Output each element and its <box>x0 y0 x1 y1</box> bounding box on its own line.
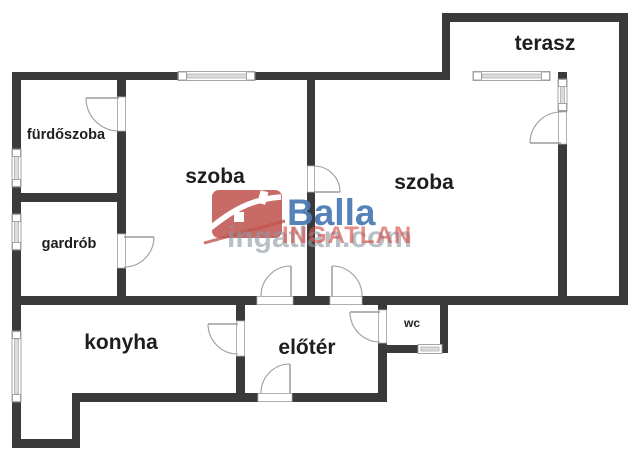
room-label-szoba-right: szoba <box>394 171 454 194</box>
door-arc-kitchen <box>208 324 238 354</box>
room-label-terasz: terasz <box>515 32 576 55</box>
door-arc-terrace <box>530 112 561 143</box>
watermark: ingatlan.com INGATLAN Balla <box>204 190 412 254</box>
room-label-gardrob: gardrób <box>42 236 97 252</box>
door-arc-entrance <box>261 364 290 393</box>
room-label-szoba-left: szoba <box>185 165 245 188</box>
door-arc-wardrobe <box>124 237 154 267</box>
door-opening-room-left <box>257 297 293 305</box>
door-opening-entrance <box>258 394 292 402</box>
window-room-right-top <box>473 72 550 81</box>
room-label-eloter: előtér <box>278 336 335 359</box>
wall-bottom-kitchen-hall <box>72 393 387 402</box>
wall-notch-bottom <box>12 439 80 448</box>
window-room-left-top <box>178 72 255 81</box>
door-arc-wc <box>350 312 380 342</box>
room-label-furdoszoba: fürdőszoba <box>27 127 106 143</box>
door-opening-room-right <box>330 297 362 305</box>
window-bathroom <box>12 149 21 187</box>
watermark-brand-text: Balla <box>287 192 376 233</box>
floor-plan-drawing: terasz fürdőszoba szoba szoba gardrób ko… <box>0 0 640 462</box>
door-arc-room-divider <box>314 166 340 192</box>
wall-bath-wardrobe <box>12 193 126 202</box>
wall-notch-right <box>72 393 80 448</box>
window-wc <box>418 345 442 354</box>
door-opening-room-divider <box>308 166 315 192</box>
wall-terrace-right <box>619 13 628 305</box>
wall-terrace-left <box>442 13 450 80</box>
floor-plan-page: terasz fürdőszoba szoba szoba gardrób ko… <box>0 0 640 462</box>
room-label-konyha: konyha <box>84 331 158 354</box>
room-label-wc: wc <box>403 316 420 330</box>
window-wardrobe <box>12 214 21 250</box>
wall-terrace-top <box>442 13 628 22</box>
door-opening-terrace <box>559 112 567 144</box>
door-opening-bathroom <box>118 97 126 131</box>
door-opening-kitchen <box>237 321 245 356</box>
window-kitchen <box>12 331 21 402</box>
door-opening-wc <box>379 310 387 343</box>
window-room-right-side <box>558 79 567 111</box>
door-arc-room-left <box>261 266 291 296</box>
wall-main-horizontal <box>12 296 628 305</box>
door-opening-wardrobe <box>118 234 126 268</box>
door-arc-room-right <box>332 266 362 296</box>
